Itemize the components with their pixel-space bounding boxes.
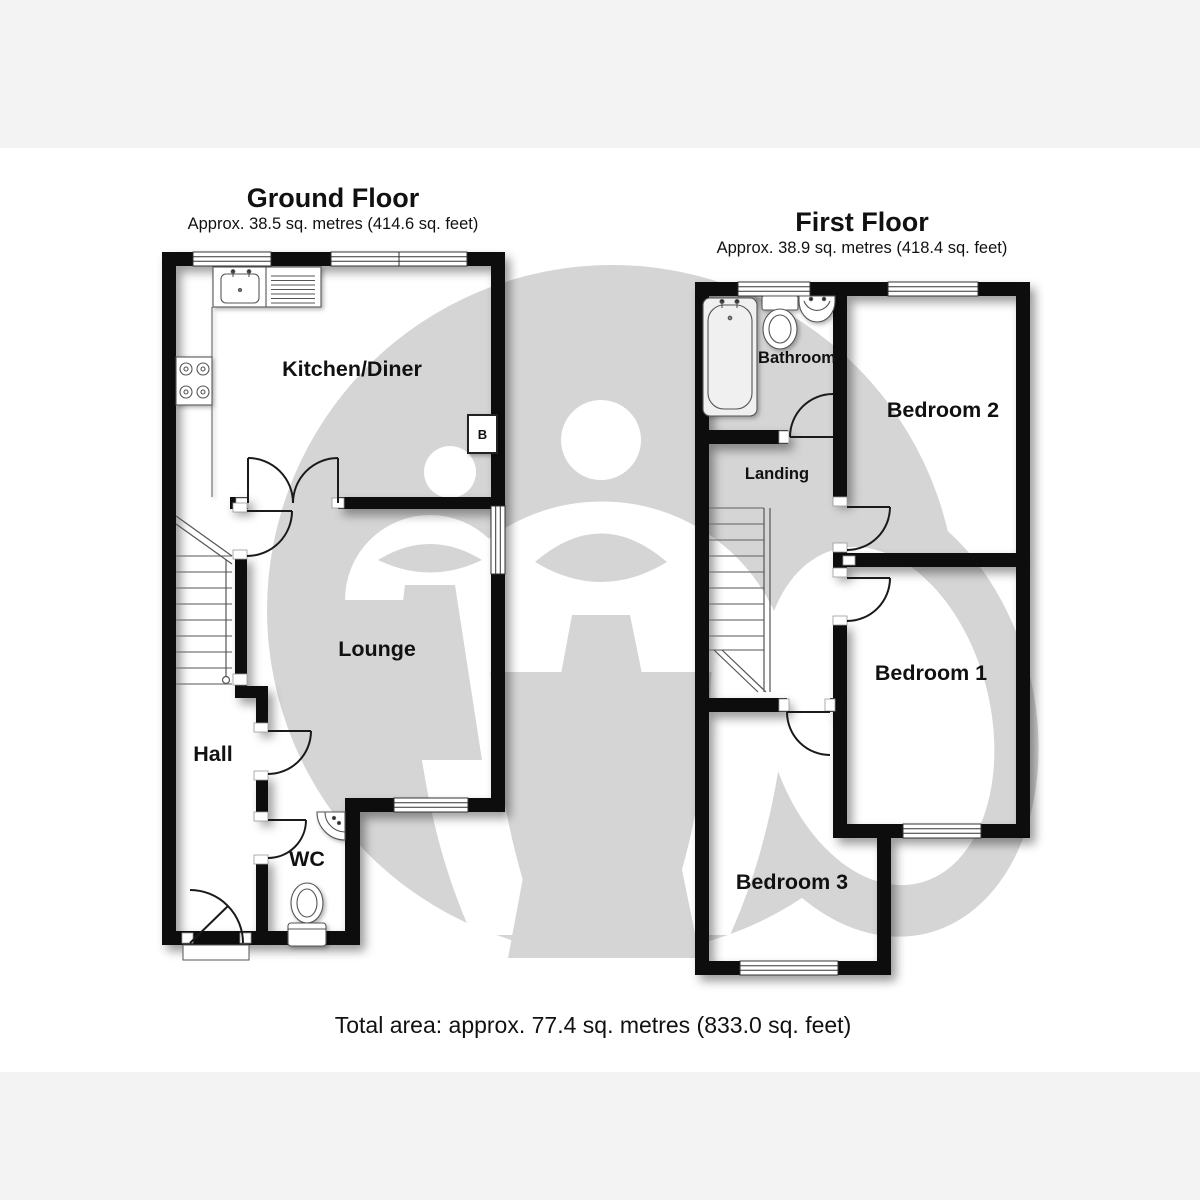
bedroom2-window [888,282,978,296]
room-label-landing: Landing [745,465,809,483]
room-label-kitchen-diner: Kitchen/Diner [282,357,422,381]
wc-toilet [288,883,326,946]
bathroom-window [738,282,810,296]
first-floor-title: First Floor [795,207,929,237]
room-label-wc: WC [289,847,325,871]
total-area-label: Total area: approx. 77.4 sq. metres (833… [335,1012,852,1038]
room-label-bedroom3: Bedroom 3 [736,870,848,894]
room-label-lounge: Lounge [338,637,416,661]
room-label-bedroom1: Bedroom 1 [875,661,987,685]
room-label-bathroom: Bathroom [758,349,836,367]
bedroom3-window [740,961,838,975]
bottom-band [0,1072,1200,1200]
kitchen-window-2 [331,252,467,266]
front-door-threshold [183,945,249,960]
lounge-side-window [491,506,505,574]
ground-floor-title: Ground Floor [247,183,420,213]
floorplan-canvas: Kitchen/Diner Lounge Hall WC B [0,0,1200,1200]
first-floor-area: Approx. 38.9 sq. metres (418.4 sq. feet) [717,239,1008,257]
bedroom1-window [903,824,981,838]
boiler-label: B [478,427,487,442]
watermark-figure-head [561,400,641,480]
kitchen-hob [176,357,212,405]
room-label-hall: Hall [193,742,232,766]
top-band [0,0,1200,148]
kitchen-sink-unit [213,267,321,307]
floorplan-page: Kitchen/Diner Lounge Hall WC B [0,0,1200,1200]
bathroom-toilet [762,296,798,349]
ground-floor-area: Approx. 38.5 sq. metres (414.6 sq. feet) [188,215,479,233]
bathtub [703,298,757,416]
kitchen-window-1 [193,252,271,266]
lounge-rear-window [394,798,468,812]
room-label-bedroom2: Bedroom 2 [887,398,999,422]
